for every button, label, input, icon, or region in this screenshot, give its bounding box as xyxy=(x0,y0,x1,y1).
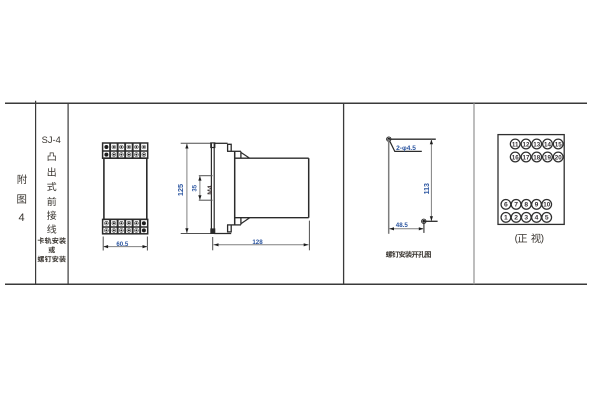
svg-text:19: 19 xyxy=(544,154,551,161)
svg-text:4: 4 xyxy=(535,215,539,222)
svg-text:12: 12 xyxy=(523,141,530,148)
svg-text:113: 113 xyxy=(424,183,431,194)
svg-text:16: 16 xyxy=(512,154,519,161)
svg-text:7: 7 xyxy=(514,202,518,209)
svg-text:18: 18 xyxy=(533,154,540,161)
svg-text:35: 35 xyxy=(193,184,199,191)
svg-text:4: 4 xyxy=(18,212,24,224)
svg-text:13: 13 xyxy=(533,141,540,148)
svg-text:1: 1 xyxy=(504,215,508,222)
svg-text:17: 17 xyxy=(523,154,530,161)
svg-text:20: 20 xyxy=(555,154,562,161)
svg-text:15: 15 xyxy=(555,141,562,148)
svg-text:60.5: 60.5 xyxy=(116,241,128,248)
svg-text:11: 11 xyxy=(512,141,519,148)
svg-text:6: 6 xyxy=(504,202,508,209)
svg-text:128: 128 xyxy=(252,239,263,246)
svg-text:(: ( xyxy=(515,233,519,244)
svg-text:M4: M4 xyxy=(207,185,214,194)
svg-text:48.5: 48.5 xyxy=(396,222,409,229)
svg-text:3: 3 xyxy=(524,215,528,222)
svg-text:9: 9 xyxy=(535,202,539,209)
svg-text:8: 8 xyxy=(524,202,528,209)
svg-text:2: 2 xyxy=(514,215,518,222)
svg-text:10: 10 xyxy=(543,202,550,209)
svg-text:125: 125 xyxy=(176,184,185,196)
svg-text:SJ-4: SJ-4 xyxy=(42,135,61,145)
svg-text:2-φ4.5: 2-φ4.5 xyxy=(396,145,416,152)
svg-text:5: 5 xyxy=(545,215,549,222)
svg-text:): ) xyxy=(541,233,544,244)
svg-text:14: 14 xyxy=(544,141,551,148)
